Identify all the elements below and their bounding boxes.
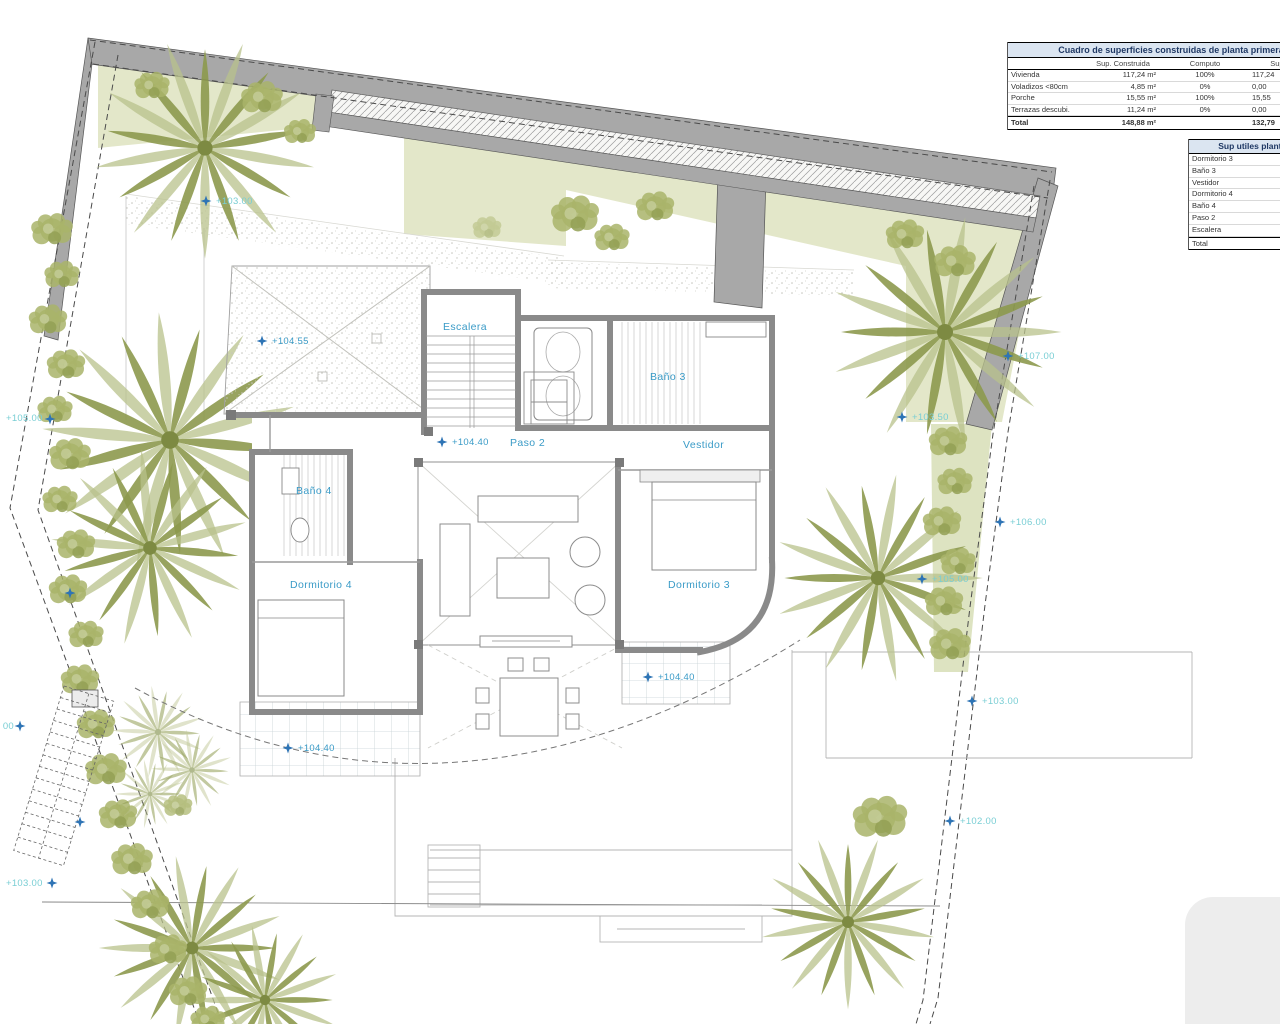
level-label: +102.00 [960,816,997,827]
level-label: +103.00 [216,196,253,207]
row-sup: 4,85 m² [1080,82,1166,93]
bedroom4-furniture [258,600,344,696]
total-label: Total [1189,238,1257,249]
row-label: Terrazas descubi. [1008,105,1080,116]
table-row: Porche 15,55 m² 100% 15,55 [1008,93,1280,105]
row-label: Baño 4 [1189,201,1257,212]
table-title: Sup utiles planta primera [1189,139,1280,154]
row-label: Baño 3 [1189,166,1257,177]
row-computo: 0% [1166,105,1244,116]
total-computo [1166,117,1244,129]
table-title: Cuadro de superficies construidas de pla… [1008,42,1280,58]
table-row: Baño 4 8, [1189,201,1280,213]
level-label: +107.00 [1018,351,1055,362]
table-header-row: Sup. Construida Computo Sup. Comp [1008,58,1280,70]
table-row: Dormitorio 3 18, [1189,154,1280,166]
level-label: +104.40 [452,437,489,448]
label-paso2: Paso 2 [510,437,545,449]
col-sup-construida: Sup. Construida [1080,58,1166,69]
level-label: 00 [3,721,14,732]
bedroom3-furniture [640,470,760,570]
row-value: 4, [1257,213,1280,224]
row-comp: 117,24 [1244,70,1280,81]
row-label: Voladizos <80cm [1008,82,1080,93]
table-row: Vestidor 10, [1189,178,1280,190]
total-sup: 148,88 m² [1080,117,1166,129]
row-computo: 100% [1166,93,1244,104]
palm-tree [694,766,1005,1024]
label-dormitorio3: Dormitorio 3 [668,579,730,591]
level-label: +105.00 [6,413,43,424]
level-label: +104.40 [658,672,695,683]
row-comp: 0,00 [1244,82,1280,93]
table-row: Dormitorio 4 24, [1189,189,1280,201]
col-computo: Computo [1166,58,1244,69]
table-total-row: Total 86, [1189,237,1280,250]
level-label: +106.00 [1010,517,1047,528]
level-label: +104.55 [272,336,309,347]
label-bano4: Baño 4 [296,485,332,497]
table-total-row: Total 148,88 m² 132,79 [1008,116,1280,130]
row-value: 7, [1257,225,1280,236]
row-comp: 15,55 [1244,93,1280,104]
row-label: Vivienda [1008,70,1080,81]
row-label: Vestidor [1189,178,1257,189]
row-value: 8, [1257,201,1280,212]
row-label: Paso 2 [1189,213,1257,224]
table-row: Vivienda 117,24 m² 100% 117,24 [1008,70,1280,82]
table-row: Baño 3 11, [1189,166,1280,178]
row-value: 24, [1257,189,1280,200]
label-escalera: Escalera [443,321,487,333]
table-superficies-utiles: Sup utiles planta primera Dormitorio 3 1… [1188,139,1280,250]
level-label: +104.40 [298,743,335,754]
floor-plan-sheet: Escalera Paso 2 Baño 3 Vestidor Baño 4 D… [0,0,1280,1024]
table-superficies-construidas: Cuadro de superficies construidas de pla… [1007,42,1280,130]
row-label: Porche [1008,93,1080,104]
total-label: Total [1008,117,1080,129]
row-sup: 117,24 m² [1080,70,1166,81]
row-computo: 0% [1166,82,1244,93]
table-row: Voladizos <80cm 4,85 m² 0% 0,00 [1008,82,1280,94]
row-label: Dormitorio 3 [1189,154,1257,165]
total-value: 86, [1257,238,1280,249]
label-dormitorio4: Dormitorio 4 [290,579,352,591]
label-vestidor: Vestidor [683,439,724,451]
level-label: +103.00 [982,696,1019,707]
roof-terrace [224,266,430,414]
row-label: Dormitorio 4 [1189,189,1257,200]
level-label: +103.00 [6,878,43,889]
table-row: Terrazas descubi. 11,24 m² 0% 0,00 [1008,105,1280,117]
table-row: Escalera 7, [1189,225,1280,237]
row-comp: 0,00 [1244,105,1280,116]
col-sup-comp: Sup. Comp [1244,58,1280,69]
level-label: +105.00 [932,574,969,585]
row-label: Escalera [1189,225,1257,236]
level-label: +103.50 [912,412,949,423]
title-block-placeholder [1185,897,1280,1024]
row-value: 11, [1257,166,1280,177]
total-comp: 132,79 [1244,117,1280,129]
row-computo: 100% [1166,70,1244,81]
row-value: 18, [1257,154,1280,165]
label-bano3: Baño 3 [650,371,686,383]
row-sup: 11,24 m² [1080,105,1166,116]
row-value: 10, [1257,178,1280,189]
site-plan-drawing: Escalera Paso 2 Baño 3 Vestidor Baño 4 D… [0,0,1280,1024]
row-sup: 15,55 m² [1080,93,1166,104]
table-row: Paso 2 4, [1189,213,1280,225]
